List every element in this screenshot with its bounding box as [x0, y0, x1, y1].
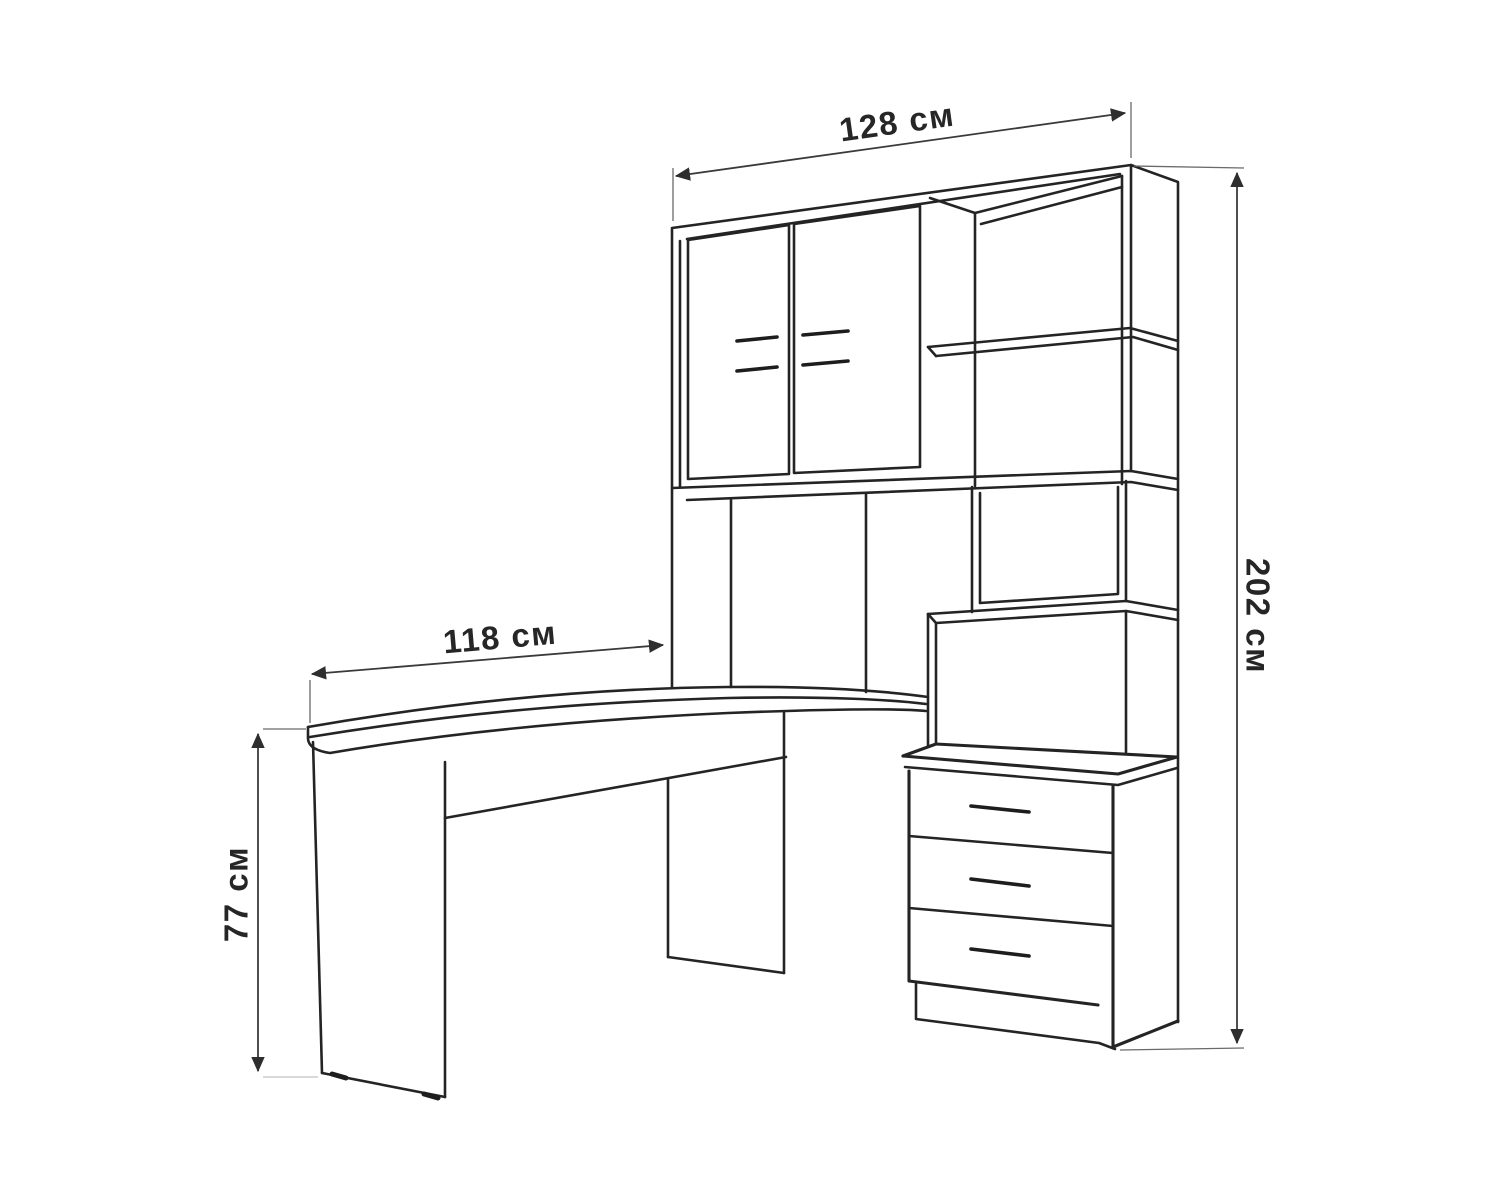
- hutch-bottom-shelf-top: [672, 471, 1178, 488]
- drawer-top-back-edge: [903, 744, 1177, 757]
- hutch-shelf-bottom: [936, 337, 1178, 356]
- door-left-handle: [737, 337, 777, 371]
- dimension-desk-length: 118 см: [310, 614, 663, 723]
- door-right-handle: [803, 331, 848, 365]
- drawer-divider-2: [909, 908, 1113, 926]
- desk-foot-front: [332, 1074, 346, 1078]
- dimension-label-128: 128 см: [837, 96, 957, 149]
- tower-compartment-outer: [972, 481, 1126, 612]
- drawer-side-bottom-edge: [1113, 1021, 1178, 1047]
- drawer-front-left-edge: [909, 771, 1098, 1005]
- drawer-handle-1: [971, 806, 1029, 812]
- extension-line: [1120, 1048, 1244, 1050]
- zigzag-shelf-top: [928, 601, 1178, 614]
- desk-side-panel-front-edge: [313, 742, 322, 1073]
- dimension-overall-height: 202 см: [1120, 166, 1277, 1050]
- dimension-desk-height: 77 см: [218, 729, 319, 1077]
- desktop-back-edge: [308, 687, 928, 727]
- drawer-handle-2: [971, 879, 1029, 886]
- hutch-outline: [672, 165, 1178, 1022]
- tower-compartment-inner: [980, 487, 1118, 603]
- desk: [308, 687, 928, 1098]
- drawer-unit: [903, 744, 1178, 1049]
- desk-apron-bottom: [445, 757, 786, 818]
- hutch-shelf-left-cap: [928, 347, 936, 356]
- hutch-cabinet: [672, 165, 1178, 1022]
- drawer-divider-1: [909, 836, 1113, 853]
- dimension-label-118: 118 см: [442, 614, 559, 661]
- extension-line: [1134, 166, 1244, 168]
- desktop-front-top-edge: [310, 697, 926, 737]
- furniture-dimension-drawing: 128 см 202 см 118 см 77 см: [0, 0, 1500, 1200]
- dimension-label-77: 77 см: [218, 846, 255, 942]
- drawing-canvas: 128 см 202 см 118 см 77 см: [0, 0, 1500, 1200]
- drawer-handle-3: [971, 949, 1029, 956]
- desk-support-bottom-edge: [668, 957, 784, 973]
- hutch-door-right: [794, 206, 920, 473]
- desktop-front-outer-edge: [308, 709, 926, 753]
- dimension-label-202: 202 см: [1240, 558, 1277, 674]
- hutch-door-left: [688, 225, 789, 479]
